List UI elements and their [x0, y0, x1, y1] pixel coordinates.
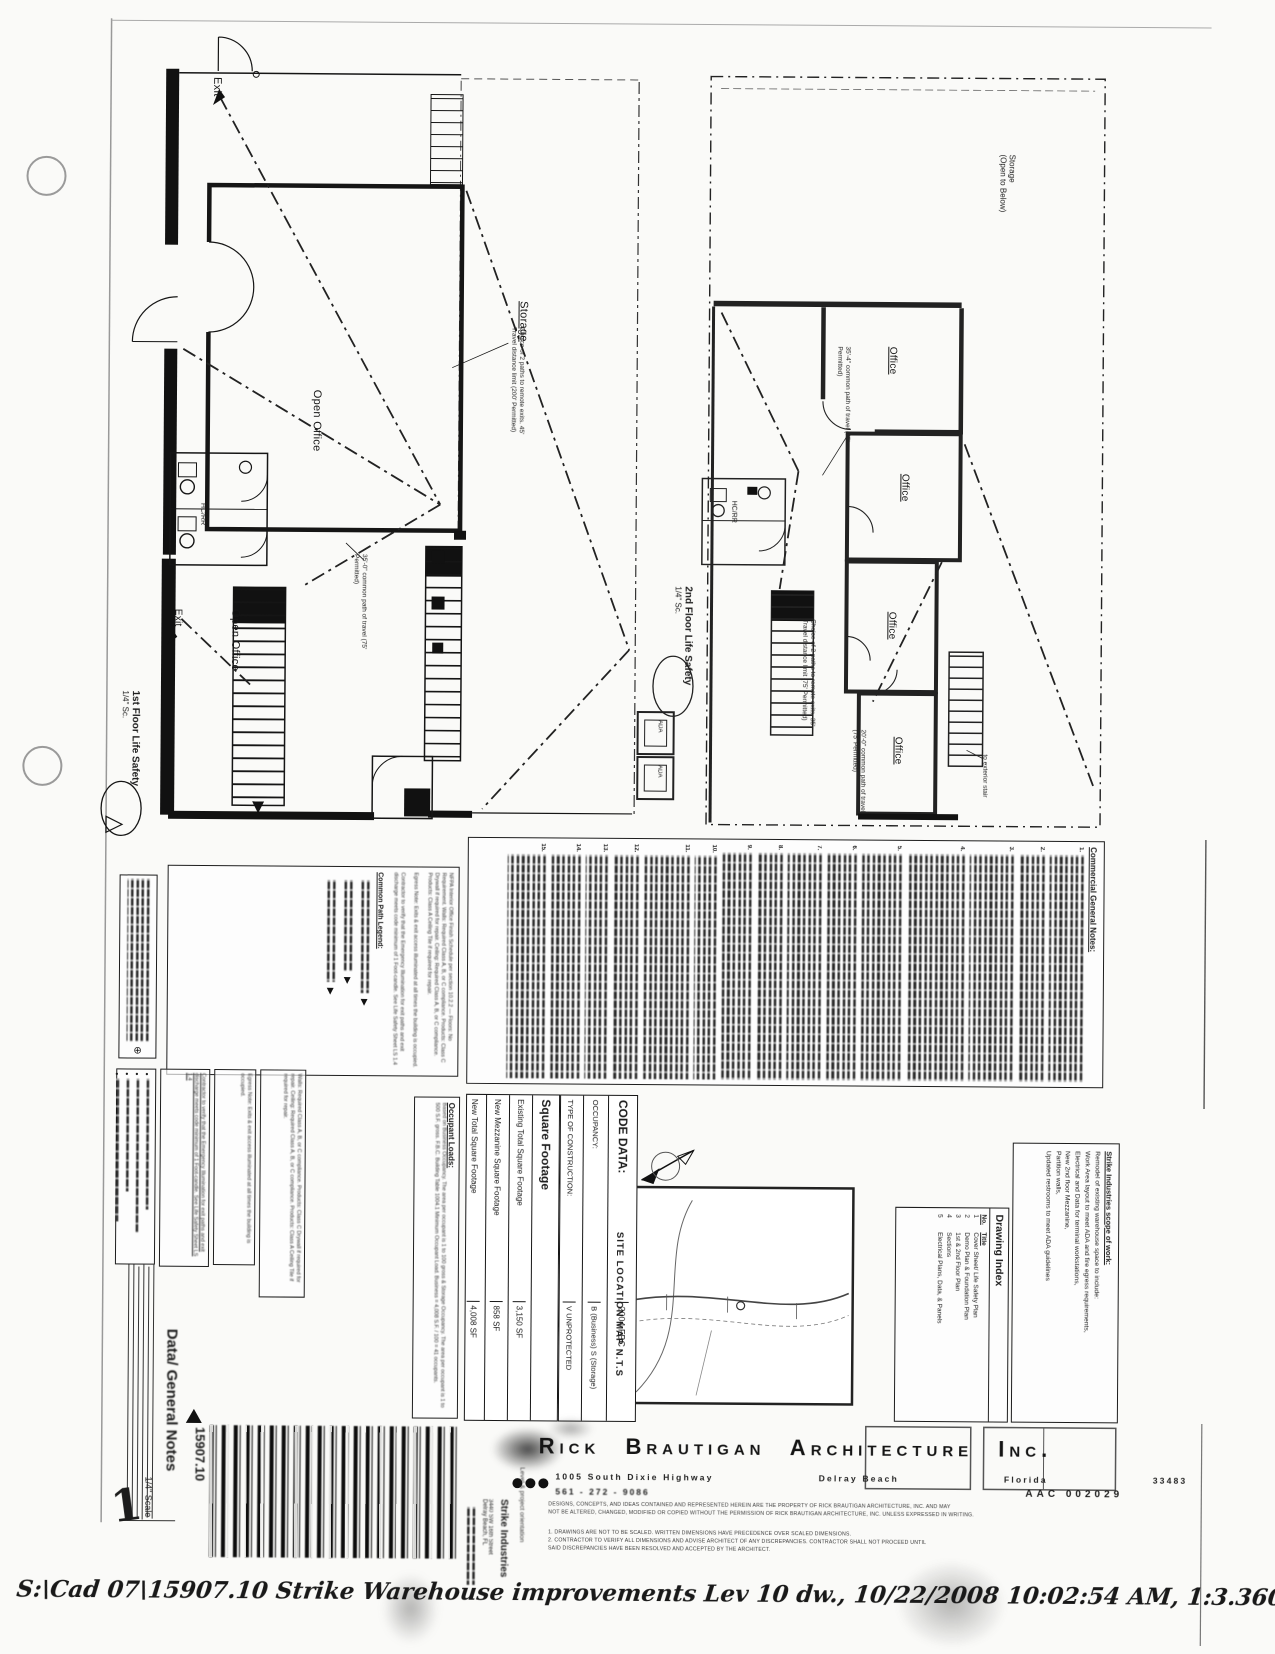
- illegible-text: [693, 856, 717, 1080]
- illegible-text: [611, 855, 639, 1079]
- finish-schedule-note: NFPA Interior Office Finish Schedule per…: [424, 873, 454, 1071]
- table-row: Existing Total Square Footage 3,150 SF: [508, 1095, 533, 1420]
- general-note-item: 9.: [720, 845, 752, 1080]
- general-note-item: 11.: [642, 844, 690, 1079]
- hole-punch-icon: [23, 747, 61, 785]
- illegible-text: [360, 880, 369, 993]
- architect-block: Rick Brautigan Architecture Inc. 1005 So…: [500, 1431, 1201, 1571]
- general-note-item: 13.: [584, 844, 608, 1079]
- illegible-text: [549, 855, 581, 1079]
- plan2-stair-note: to exterior stair: [978, 754, 988, 812]
- first-floor-plan-linework: [101, 36, 640, 839]
- general-note-item: 12.: [611, 844, 639, 1079]
- row-label: TYPE OF CONSTRUCTION:: [563, 1095, 577, 1301]
- scan-artifact-bars-overlay: [209, 1425, 460, 1559]
- general-note-item: 14.: [549, 843, 581, 1078]
- plan1-scale-text: 1/4" Sc.: [120, 690, 130, 822]
- scanned-architectural-sheet: { "plans": { "first": { "title": "1st Fl…: [0, 0, 1275, 1649]
- row-label: New Total Square Footage: [467, 1095, 481, 1301]
- plan1-storage-paths-annotation: Choice of 2 paths to remote exits. 45' T…: [505, 327, 526, 435]
- architect-notes: 1. DRAWINGS ARE NOT TO BE SCALED. WRITTE…: [548, 1529, 1188, 1557]
- illumination-note-box: Contractor to verify that the Emergency …: [159, 1069, 210, 1267]
- drawing-index-row: 1Cover Sheet/ Life Safety Plan: [970, 1208, 980, 1421]
- illegible-text: [133, 1078, 139, 1232]
- row-value: V UNPROTECTED: [562, 1301, 576, 1421]
- plan2-storage-open-label: Storage (Open to Below): [990, 154, 1017, 249]
- general-note-item: 3.: [968, 846, 1014, 1081]
- sheet-number: 1: [108, 1479, 145, 1534]
- architect-zip: 33483: [1153, 1476, 1188, 1486]
- bullet-icon: •: [122, 1072, 131, 1075]
- sheet-top-border: [112, 20, 1212, 28]
- travel-path-arrow-icon: ▶: [359, 999, 370, 1006]
- scope-line: Updated restrooms to meet ADA guidelines: [1041, 1151, 1053, 1415]
- bullet-icon: •: [112, 1072, 121, 1075]
- illegible-text: [326, 880, 335, 982]
- egress-note-text: Egress Note: Exits & exit access illumin…: [237, 1073, 253, 1261]
- plan1-exit-label-left: Exit: [170, 609, 183, 641]
- illegible-text: [720, 853, 752, 1080]
- architect-street: 1005 South Dixie Highway: [555, 1471, 713, 1482]
- row-value: B (Business) S (Storage): [587, 1301, 601, 1421]
- plan2-common-path-lower-annotation: 20'-0" common path of travel (75' Permit…: [846, 729, 867, 821]
- architect-license: AAC 002029: [1025, 1489, 1123, 1501]
- illegible-text: [1048, 855, 1084, 1082]
- drawing-index-row: 5Electrical Plans, Data, & Panels: [934, 1208, 944, 1421]
- illegible-text: [506, 854, 546, 1078]
- illegible-text: [642, 855, 690, 1079]
- travel-path-arrow-icon: ▶: [342, 977, 353, 984]
- architect-address-row: 1005 South Dixie Highway Delray Beach Fl…: [555, 1471, 1187, 1485]
- row-value: 858 SF: [489, 1300, 503, 1420]
- architect-name: Rick Brautigan Architecture Inc.: [539, 1433, 1053, 1463]
- illegible-text: [786, 853, 822, 1080]
- table-row: New Total Square Footage 4,008 SF: [462, 1095, 487, 1420]
- legend-panel: NFPA Interior Office Finish Schedule per…: [166, 865, 459, 1077]
- plan2-office-label-1: Office: [885, 347, 898, 392]
- plan2-scale-text: 1/4" Sc.: [672, 586, 682, 768]
- scope-line: Partition walls,: [1051, 1151, 1063, 1415]
- illegible-text: [113, 1078, 119, 1221]
- illegible-text: [584, 855, 608, 1079]
- plan1-restroom-label: HC/RR: [196, 503, 206, 543]
- sheet-marker-icon: [186, 1409, 202, 1423]
- sheet: Exit Storage Choice of 2 paths to remote…: [0, 0, 1275, 1653]
- general-note-item: 8.: [755, 845, 783, 1080]
- square-footage-table: Square Footage Existing Total Square Foo…: [464, 1094, 560, 1422]
- table-row: New Mezzanine Square Footage 858 SF: [485, 1095, 510, 1420]
- col-no: No.: [980, 1214, 987, 1232]
- illegible-text: [968, 854, 1014, 1081]
- illegible-text: [755, 853, 783, 1080]
- general-note-item: 1.: [1048, 847, 1084, 1082]
- drawing-index-row: 4Sections: [943, 1208, 953, 1421]
- row-label: Existing Total Square Footage: [513, 1095, 527, 1301]
- general-note-item: 5.: [860, 846, 902, 1081]
- general-note-item: 10.: [693, 844, 717, 1079]
- scope-line: New 2nd floor Mezzanine,: [1061, 1151, 1073, 1415]
- plan1-title-text: 1st Floor Life Safety: [129, 690, 141, 822]
- nfpa-note-strip: ⊕: [118, 874, 157, 1058]
- bullet-icon: •: [142, 1073, 151, 1076]
- row-value: 4,008 SF: [466, 1300, 480, 1420]
- row-label: OCCUPANCY:: [588, 1096, 602, 1302]
- project-number: 15907.10: [187, 1427, 208, 1515]
- general-notes-title: Commercial General Notes:: [1087, 847, 1098, 1082]
- illegible-text: [905, 854, 965, 1081]
- scope-title: Strike Industries scope of work:: [1103, 1151, 1114, 1415]
- architect-legal: DESIGNS, CONCEPTS, AND IDEAS CONTAINED A…: [548, 1501, 1188, 1521]
- architect-city: Delray Beach: [819, 1473, 899, 1484]
- plan2-office-label-2: Office: [897, 474, 910, 519]
- plan2-office-label-3: Office: [884, 612, 897, 657]
- bullet-row: •: [141, 1073, 151, 1261]
- legend-row: ▶: [324, 880, 336, 1062]
- second-floor-plan-linework: [637, 76, 1105, 827]
- plan2-storage-line1: Storage: [1007, 155, 1017, 250]
- legend-row: ▶: [358, 880, 370, 1062]
- plan2-title-text: 2nd Floor Life Safety: [681, 586, 693, 768]
- checked-mark-icon: ⊕: [132, 1046, 143, 1054]
- plan2-title: 2nd Floor Life Safety 1/4" Sc.: [664, 586, 693, 768]
- illegible-text: [825, 853, 857, 1080]
- egress-note-box: Egress Note: Exits & exit access illumin…: [213, 1069, 256, 1265]
- drawing-index-row: 2Demo Plan & Foundation Plan: [961, 1208, 971, 1421]
- sheet-left-border: [101, 18, 111, 1522]
- plan2-ada-label-2: ADA: [653, 765, 662, 793]
- row-label: New Mezzanine Square Footage: [490, 1095, 504, 1301]
- occupant-loads-box: Occupant Loads: Based on Business Occupa…: [412, 1096, 460, 1418]
- col-title: Title: [980, 1232, 987, 1245]
- drawing-index-title: Drawing Index: [988, 1208, 1008, 1421]
- plan1-open-office-label-2: Open Office: [227, 609, 241, 679]
- illegible-text: [467, 1507, 476, 1585]
- illumination-note-text: Contractor to verify that the Emergency …: [184, 1073, 207, 1263]
- general-notes-panel: Commercial General Notes: 1. 2. 3. 4. 5.…: [466, 837, 1105, 1088]
- table-row: OCCUPANCY: B (Business) S (Storage): [582, 1096, 609, 1421]
- plan2-ada-label-1: ADA: [654, 720, 663, 748]
- plan2-two-paths-annotation: Choice of 2 paths to remote exits. 35' T…: [796, 619, 817, 729]
- drawing-index-header: No. Title: [979, 1208, 989, 1421]
- bullet-row: •: [121, 1072, 131, 1260]
- hole-punch-icon: [27, 157, 65, 195]
- plan1-exit-label-top: Exit: [209, 77, 223, 111]
- scope-line: Remodel of existing warehouse space to i…: [1090, 1151, 1102, 1415]
- illegible-text: [1017, 855, 1045, 1082]
- square-footage-title: Square Footage: [535, 1095, 555, 1420]
- illegible-text: [126, 878, 149, 1041]
- general-note-item: 2.: [1017, 847, 1045, 1082]
- plan1-title: 1st Floor Life Safety 1/4" Sc.: [112, 690, 141, 822]
- scope-of-work-panel: Strike Industries scope of work: Remodel…: [1011, 1143, 1120, 1424]
- drawing-index-panel: Drawing Index No. Title 1Cover Sheet/ Li…: [894, 1207, 1009, 1423]
- bullet-icon: •: [132, 1072, 141, 1075]
- illegible-text: [860, 854, 902, 1081]
- general-note-item: 7.: [786, 845, 822, 1080]
- bullet-row: •: [111, 1072, 121, 1260]
- travel-path-arrow-icon: ▶: [325, 988, 336, 995]
- row-value: 3,150 SF: [512, 1301, 526, 1421]
- illegible-text: [123, 1078, 129, 1191]
- architect-state: Florida: [1004, 1475, 1048, 1485]
- walls-finish-text: Walls: Required Class A, B, or C complia…: [279, 1074, 302, 1294]
- plan2-office-label-4: Office: [890, 737, 903, 782]
- bullet-row: •: [131, 1072, 141, 1260]
- north-arrow-icon: [641, 1150, 693, 1184]
- egress-note: Egress Note: Exits & exit access illumin…: [411, 872, 420, 1070]
- sheet-right-border-a: [1204, 840, 1206, 1109]
- sheet-title: Data/ General Notes: [155, 1329, 180, 1481]
- common-path-legend-title: Common Path Legend:: [375, 872, 383, 1070]
- square-footage-header-row: Square Footage: [531, 1095, 559, 1420]
- drawing-index-row: 31st & 2nd Floor Plan: [952, 1208, 962, 1421]
- illumination-note: Contractor to verify that the Emergency …: [390, 872, 406, 1070]
- general-note-item: 4.: [905, 846, 965, 1081]
- plan2-restroom-label: HC/RR: [727, 501, 737, 541]
- walls-finish-box: Walls: Required Class A, B, or C complia…: [259, 1069, 307, 1297]
- legend-row: ▶: [341, 880, 353, 1062]
- table-row: TYPE OF CONSTRUCTION: V UNPROTECTED: [557, 1095, 584, 1420]
- plan1-open-office-label-1: Open Office: [309, 390, 323, 460]
- plan1-common-path-annotation: 35'-0" common path of travel (75' Permit…: [347, 554, 368, 660]
- illegible-text: [143, 1078, 149, 1210]
- architect-phone: 561 - 272 - 9086: [555, 1486, 649, 1497]
- code-data-table: CODE DATA: 2004 FBC OCCUPANCY: B (Busine…: [558, 1094, 638, 1422]
- plan2-common-path-upper-annotation: 35'-4" common path of travel (75' Permit…: [831, 346, 852, 446]
- scope-line: Work Area layout to meet ADA and fire eg…: [1080, 1151, 1092, 1415]
- general-note-item: 6.: [825, 845, 857, 1080]
- illegible-text: [343, 880, 352, 971]
- bullet-note-box: • • • •: [115, 1068, 156, 1264]
- occupant-loads-body: Based on Business Occupancy. The area pe…: [431, 1103, 447, 1413]
- plan2-storage-line2: (Open to Below): [998, 155, 1008, 250]
- general-note-item: 15.: [506, 843, 546, 1078]
- scope-line: Electrical and Data for terminal worksta…: [1070, 1151, 1082, 1415]
